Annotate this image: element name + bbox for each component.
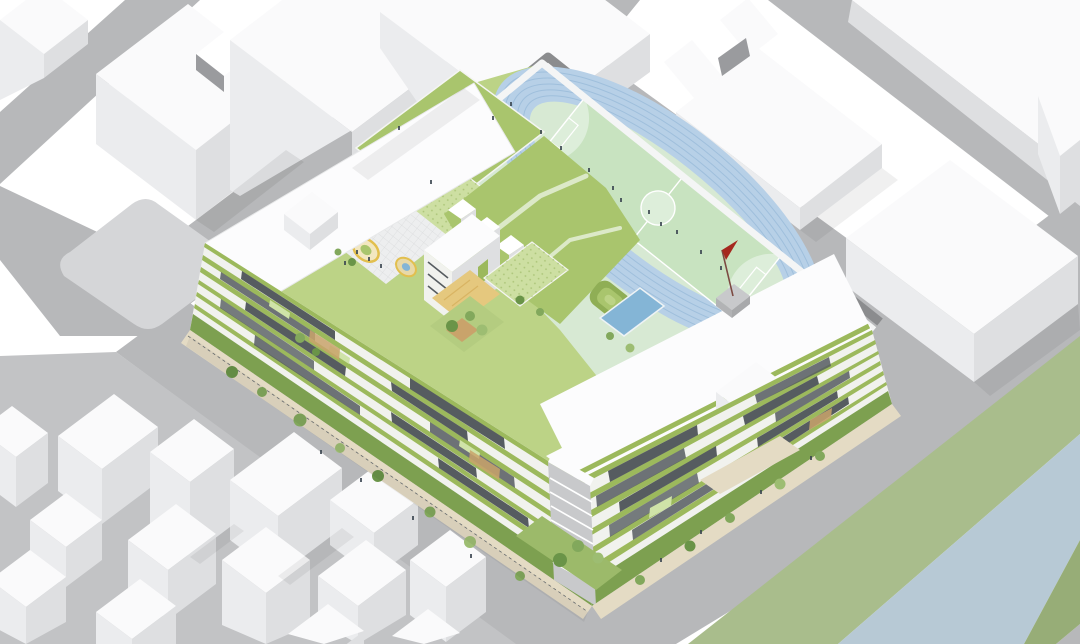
architectural-rendering: Isometric school campus architectural re… — [0, 0, 1080, 644]
isometric-site-plan — [0, 0, 1080, 644]
